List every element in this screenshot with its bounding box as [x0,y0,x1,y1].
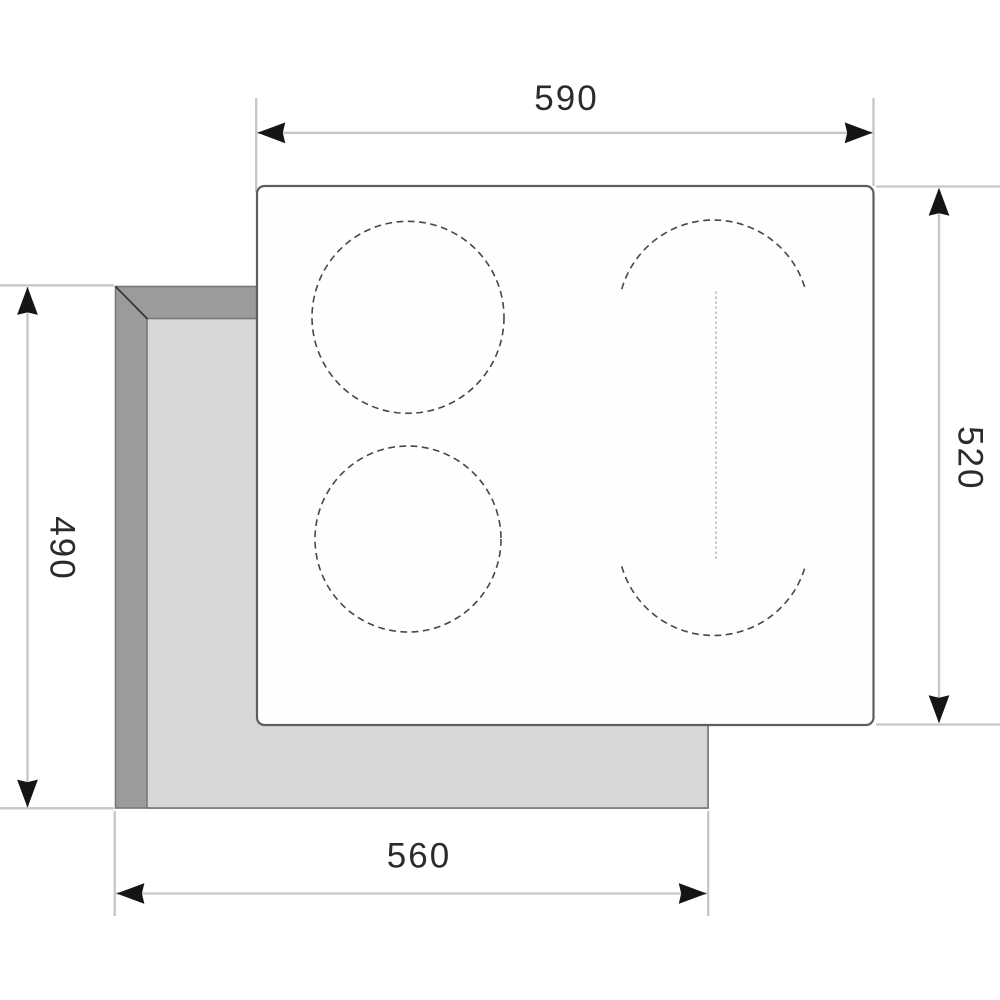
svg-text:590: 590 [534,79,598,118]
svg-text:560: 560 [387,837,451,876]
svg-text:490: 490 [43,516,82,580]
svg-text:520: 520 [951,426,990,490]
